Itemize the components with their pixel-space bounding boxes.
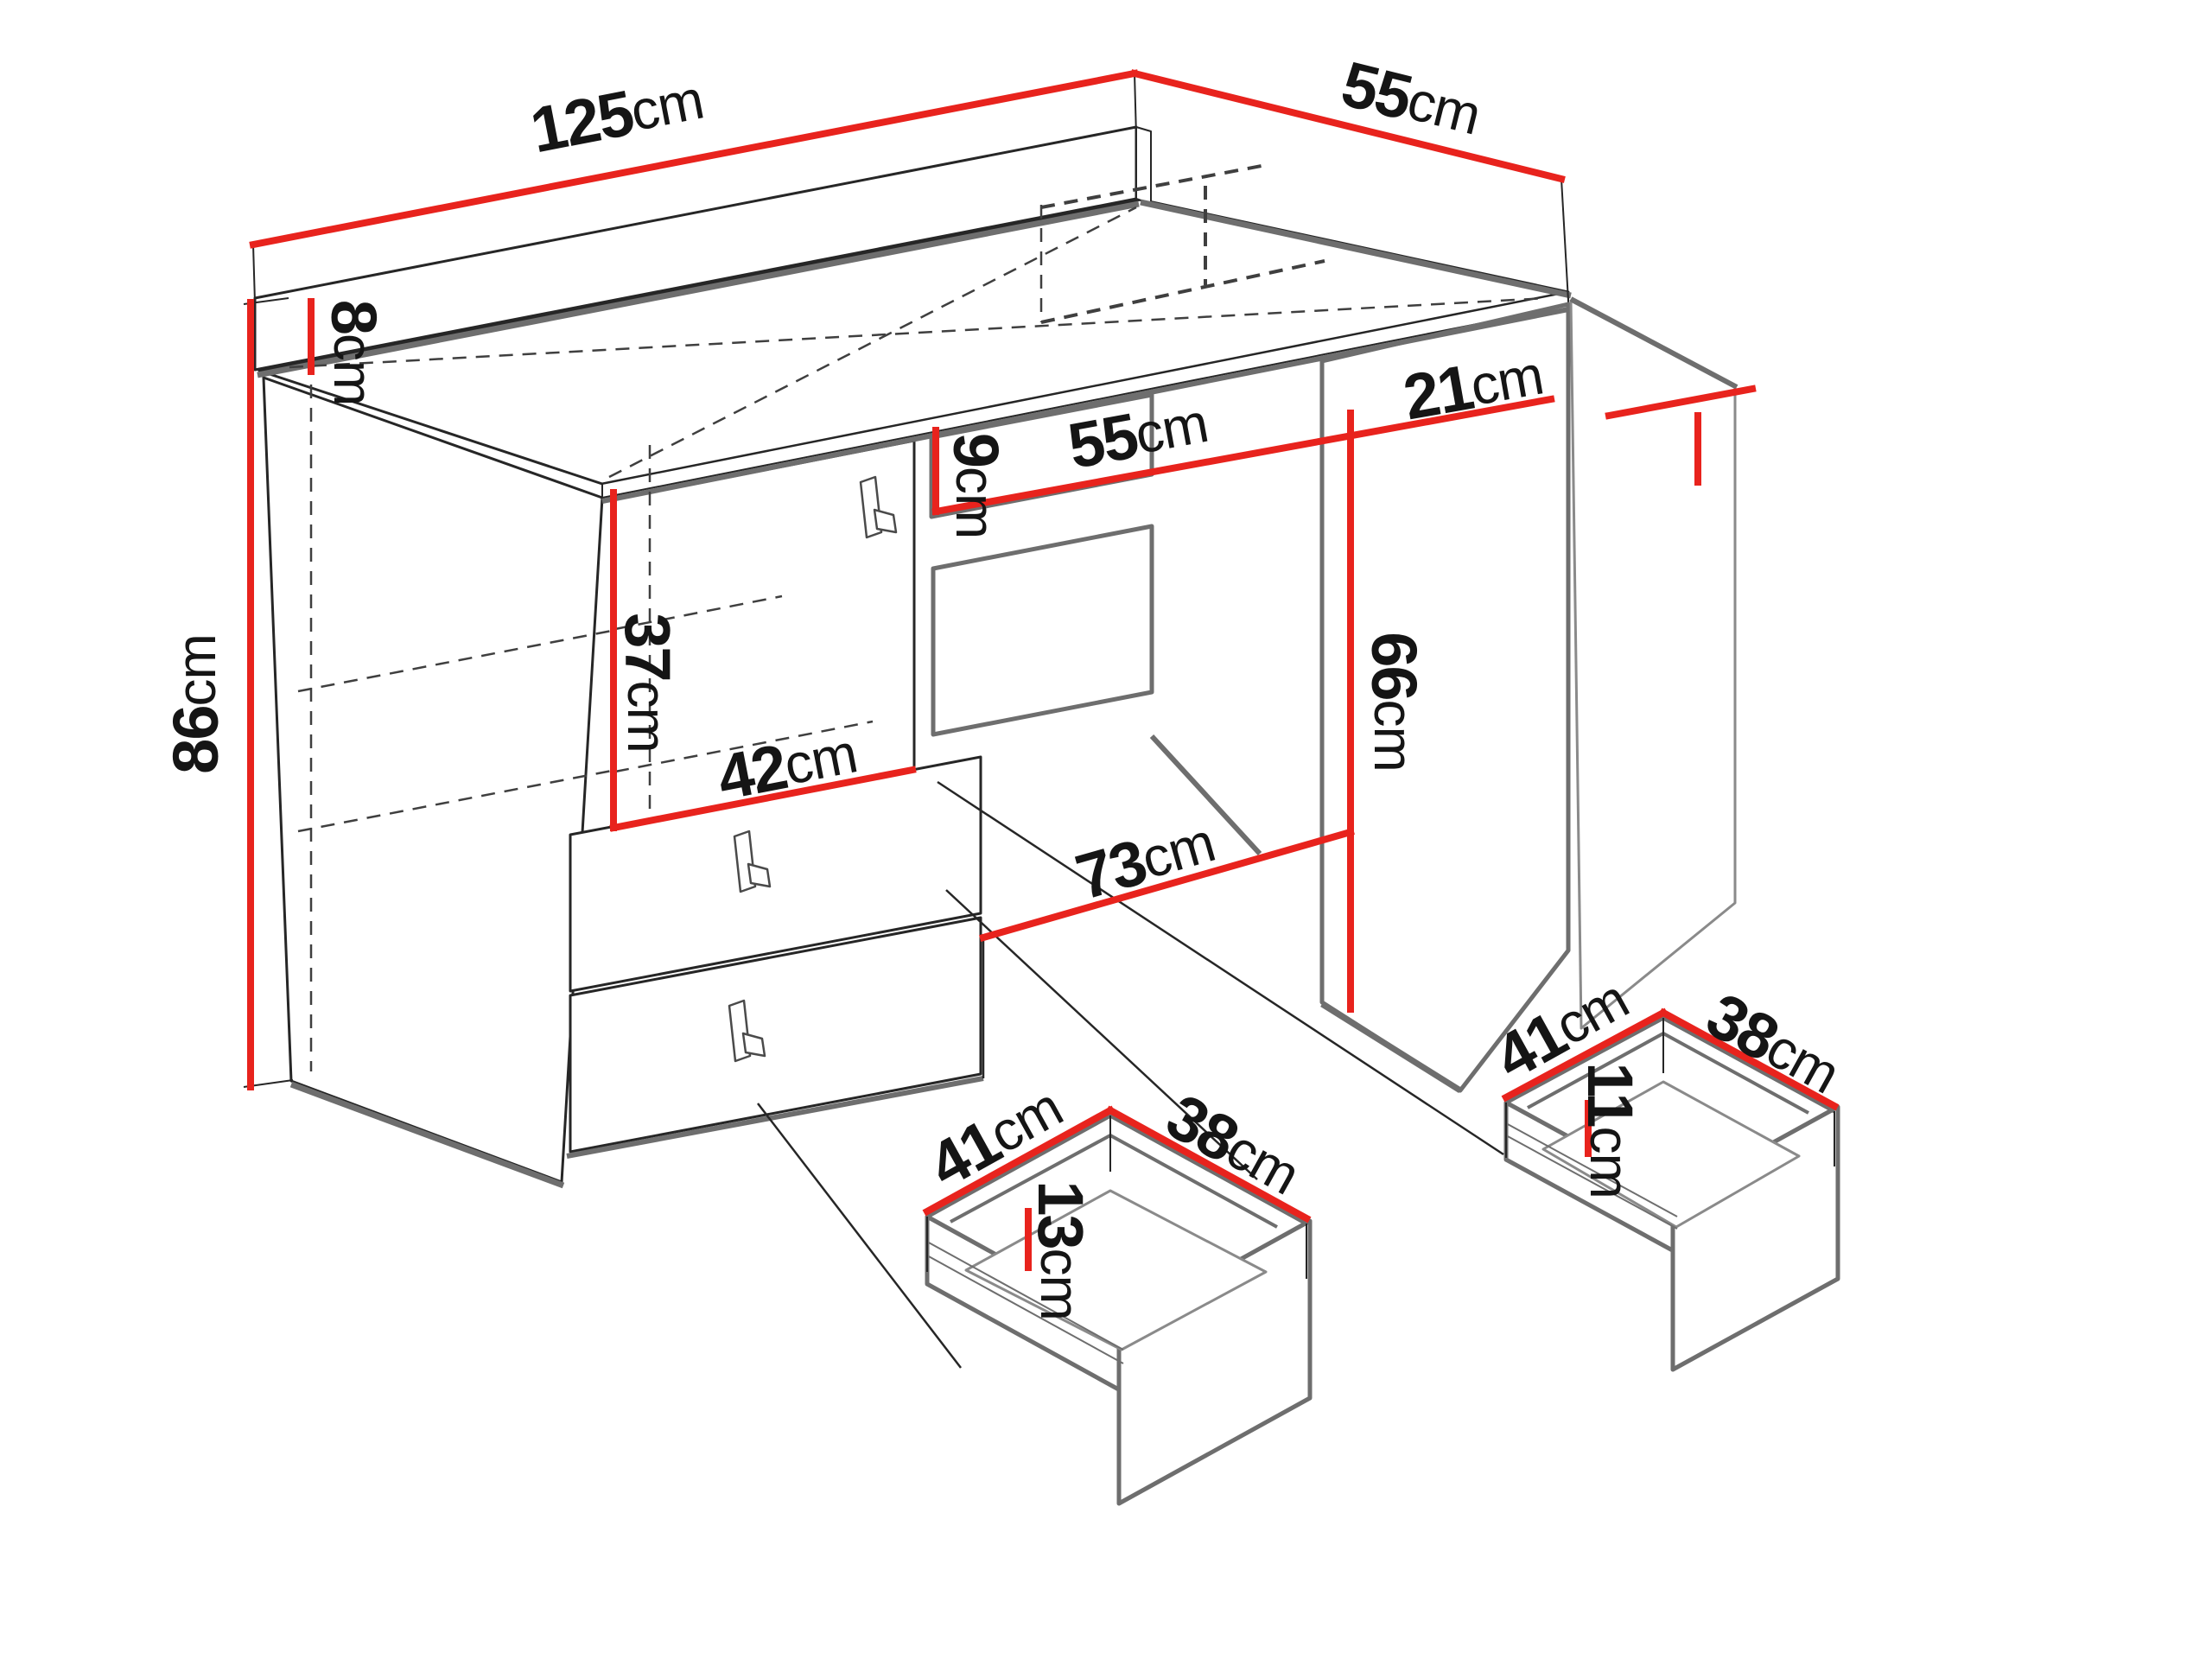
dim-backsplash-height: 8cm: [318, 300, 390, 405]
dim-drawerB-height: 11cm: [1574, 1062, 1646, 1198]
dim-knee-floor-width: 73cm: [1068, 805, 1222, 912]
left-side-panel: [264, 378, 602, 1182]
dim-door-height: 37cm: [612, 613, 683, 753]
dim-drawerA-depth: 38cm: [1155, 1079, 1313, 1210]
dim-desk-depth: 55cm: [1335, 47, 1488, 150]
ext-55top-right: [1561, 179, 1568, 301]
dim-drawerB-depth: 38cm: [1695, 978, 1853, 1109]
dim-desk-height: 86cm: [160, 634, 232, 774]
furniture-dimension-diagram: 125cm55cm8cm86cm9cm55cm21cm37cm42cm66cm7…: [0, 0, 2212, 1659]
ext-125-left: [253, 245, 255, 302]
dim-top-drawer-front: 9cm: [940, 433, 1012, 538]
diagram-canvas: 125cm55cm8cm86cm9cm55cm21cm37cm42cm66cm7…: [0, 0, 2212, 1659]
open-drawer-box-side: [933, 526, 1152, 734]
dim-knee-height: 66cm: [1358, 632, 1430, 772]
backsplash-end-sliver: [1136, 127, 1151, 204]
dim-drawerA-height: 13cm: [1025, 1180, 1096, 1320]
dim-desk-width: 125cm: [524, 62, 709, 166]
